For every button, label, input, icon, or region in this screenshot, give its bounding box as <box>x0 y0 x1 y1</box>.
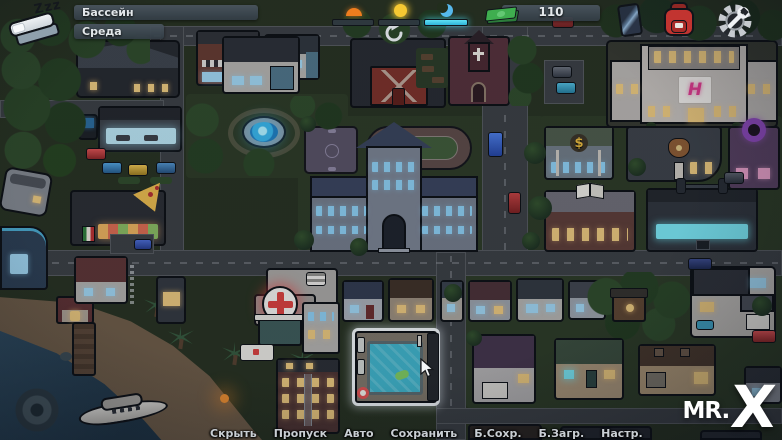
parked-car-red-2 <box>752 330 776 343</box>
cash-icon <box>486 8 520 24</box>
bed-icon <box>6 5 65 52</box>
house-roof <box>470 282 510 300</box>
dumbbell-bar <box>684 184 720 189</box>
watermark-x: X <box>730 384 778 430</box>
hospital-tower <box>302 302 340 354</box>
factory-window <box>148 84 154 92</box>
tree <box>444 284 462 302</box>
house-mid-1[interactable] <box>342 280 384 322</box>
school-entrance-arch <box>382 214 406 252</box>
church-door <box>471 82 486 102</box>
house-window <box>447 304 455 312</box>
tree <box>752 296 772 316</box>
house-window <box>350 305 359 313</box>
garden-bench <box>422 66 434 72</box>
bank-sign-disc: $ <box>570 134 588 152</box>
library-windows <box>552 228 628 241</box>
house-door <box>586 370 597 388</box>
house-window <box>106 288 115 296</box>
bank[interactable]: $ <box>544 126 614 180</box>
watermark: MR. X <box>683 384 776 430</box>
house-tv-glow-window <box>564 370 574 379</box>
settings-button[interactable] <box>712 0 760 42</box>
quick-menu: Скрыть Пропуск Авто Сохранить Б.Сохр. Б.… <box>210 427 643 440</box>
quick-menu-hide[interactable]: Скрыть <box>210 427 257 440</box>
donut-window <box>758 168 770 179</box>
tree <box>466 330 482 346</box>
big-house-garage-door <box>746 314 770 330</box>
hospital-canopy <box>254 314 304 321</box>
school-tower-roof <box>356 122 432 148</box>
hedge <box>150 177 172 184</box>
location-label-text: Бассейн <box>82 6 134 19</box>
dumbbell-plate <box>676 178 686 194</box>
quick-menu-save[interactable]: Сохранить <box>391 427 458 440</box>
cinema-window <box>10 254 28 274</box>
hospital[interactable] <box>254 268 340 354</box>
donut-sign <box>742 118 766 142</box>
sunrise-icon[interactable] <box>346 8 362 16</box>
campfire[interactable] <box>220 394 229 403</box>
moon-icon[interactable] <box>440 4 453 17</box>
big-house-window-2 <box>750 278 766 288</box>
gym-window-band <box>656 224 748 239</box>
treehouse-window <box>626 304 634 312</box>
school-right-roof <box>416 176 478 198</box>
tree <box>522 232 540 250</box>
white-lattice-fence <box>130 262 134 304</box>
parked-car-cyan <box>556 82 576 94</box>
hotel-entrance <box>688 108 704 122</box>
hedge <box>118 177 140 184</box>
garage-door <box>482 382 508 399</box>
driving-car-blue <box>488 132 503 157</box>
tree <box>350 238 368 256</box>
open-book-sign <box>576 183 590 199</box>
sea-rock-small <box>60 352 72 361</box>
money-value: 110 <box>538 5 563 19</box>
tree <box>524 142 546 164</box>
quick-menu-quicksave[interactable]: Б.Сохр. <box>474 427 521 440</box>
house-br-1[interactable] <box>468 280 512 322</box>
school-wing-windows-2 <box>422 206 472 216</box>
smartphone-icon <box>617 3 643 38</box>
lounger <box>357 359 365 375</box>
hotel-lower-windows-right <box>748 84 772 94</box>
house-mid-2[interactable] <box>388 278 434 322</box>
watermark-prefix: MR. <box>683 400 730 423</box>
backyard-pool <box>696 320 714 330</box>
fire-escape <box>304 374 312 426</box>
gym-roof-edge <box>648 190 756 202</box>
showroom-car-silhouette <box>144 135 158 141</box>
bank-sign: $ <box>574 136 583 151</box>
house-balcony-window <box>526 304 538 313</box>
house-roof <box>640 346 714 366</box>
house-window <box>576 304 584 312</box>
shop-window <box>163 292 180 306</box>
house-window <box>476 306 485 314</box>
house-window <box>84 288 93 296</box>
boathouse-door-lit <box>70 311 80 321</box>
dealership-roof <box>100 108 180 120</box>
gear-wrench-icon <box>712 0 758 42</box>
tree <box>628 158 646 176</box>
church-grove <box>506 36 546 106</box>
parked-car-yellow <box>128 164 148 176</box>
house-window <box>250 76 262 85</box>
parked-car-blue-3 <box>134 239 152 250</box>
parked-car-dark <box>552 66 572 78</box>
time-slot-bar-night-active[interactable] <box>424 19 468 26</box>
treehouse[interactable] <box>612 292 646 322</box>
quick-menu-skip[interactable]: Пропуск <box>274 427 327 440</box>
house-door <box>366 305 374 319</box>
driving-car-navy <box>688 258 712 270</box>
house-window <box>416 305 425 313</box>
day-label-text: Среда <box>82 25 122 38</box>
beach-shop[interactable] <box>156 276 186 324</box>
tree <box>528 196 552 220</box>
hotel-mid-windows <box>648 106 676 117</box>
house-window <box>604 370 615 379</box>
library[interactable] <box>544 190 636 252</box>
dormer <box>654 348 664 357</box>
bay-window <box>694 372 708 384</box>
time-slot-bar-morning[interactable] <box>332 19 374 26</box>
dormer <box>680 348 690 357</box>
location-label: Бассейн <box>74 5 258 20</box>
hotel-lower-windows-left <box>616 84 640 94</box>
house-annex <box>270 66 294 90</box>
treehouse-roof <box>610 288 648 298</box>
big-house-window <box>700 302 714 312</box>
house-top-2[interactable] <box>222 36 300 94</box>
apartment-roof-window <box>306 363 313 369</box>
lifebuoy <box>357 387 369 399</box>
sea-rocks <box>14 388 60 432</box>
backpack-icon <box>662 2 696 38</box>
hospital-roof-vents <box>306 272 326 286</box>
badge-star <box>676 145 682 151</box>
pepperoni-dot <box>155 186 159 190</box>
quick-menu-auto[interactable]: Авто <box>344 427 373 440</box>
pool-water <box>367 341 423 395</box>
police-windows <box>690 162 716 174</box>
tree <box>294 230 314 250</box>
factory-window <box>162 84 168 92</box>
tudor-door <box>392 88 405 106</box>
palm-trunk <box>178 339 183 349</box>
phone-button[interactable] <box>612 2 648 40</box>
day-label: Среда <box>74 24 164 39</box>
lounger <box>357 337 365 353</box>
pizzeria-awning <box>82 226 95 242</box>
road-marking <box>450 256 452 406</box>
police-badge-sign <box>668 138 690 158</box>
school-left-roof <box>310 176 372 198</box>
house-roof <box>390 280 432 298</box>
time-of-day-widget[interactable] <box>332 2 470 28</box>
hotel-top-windows <box>654 51 734 63</box>
bank-column <box>598 150 601 176</box>
house-window <box>397 305 406 313</box>
red-cross-horizontal <box>268 301 293 308</box>
sleep-button[interactable]: Zzz <box>6 0 70 48</box>
school-wing-windows-4 <box>422 226 472 234</box>
gym-door <box>696 240 710 250</box>
rv-window <box>32 195 41 203</box>
pepperoni-dot <box>148 192 153 197</box>
arrow-pointer-icon <box>420 358 436 384</box>
house-green[interactable] <box>554 338 624 400</box>
moon-crescent-bite <box>437 2 448 13</box>
open-book-sign-right <box>590 183 604 199</box>
park-trees <box>186 96 348 176</box>
house-roof <box>556 340 622 364</box>
garage-door <box>646 372 666 388</box>
hospital-garage <box>258 318 302 346</box>
palm-trunk <box>232 355 237 365</box>
house-roof <box>76 258 126 282</box>
school-wing-windows-3 <box>316 226 366 234</box>
tree <box>300 116 316 132</box>
house-roof <box>474 336 534 368</box>
time-slot-bar-day[interactable] <box>378 19 420 26</box>
quick-menu-quickload[interactable]: Б.Загр. <box>539 427 585 440</box>
car-dealership[interactable] <box>98 106 182 152</box>
hotel-mid-windows-2 <box>714 106 738 117</box>
house-porch <box>306 52 318 78</box>
school-wing-windows <box>316 206 366 216</box>
house-roof <box>518 280 562 299</box>
parked-car-blue <box>102 162 122 174</box>
house-br-2[interactable] <box>516 278 564 322</box>
game-screen: H $ <box>0 0 782 440</box>
diving-board <box>417 335 422 347</box>
house-window <box>546 304 555 312</box>
house-purple[interactable] <box>472 334 536 404</box>
gym[interactable] <box>646 188 758 252</box>
hospital-tower-windows <box>308 312 334 321</box>
driving-car-red <box>508 192 521 214</box>
hospital-tower-windows-2 <box>308 330 334 339</box>
inventory-button[interactable] <box>656 0 702 40</box>
community-garden[interactable] <box>416 48 448 88</box>
house-window <box>518 374 529 383</box>
house-window <box>232 76 244 85</box>
parked-car-blue-2 <box>156 162 176 174</box>
backpack-tag <box>675 23 683 28</box>
garden-bench <box>421 54 433 60</box>
school-tower-windows-2 <box>372 180 416 190</box>
garden-bench <box>432 77 444 83</box>
house-roof <box>224 38 298 62</box>
house-window <box>494 306 503 314</box>
big-house-roof <box>692 268 750 296</box>
pier-deck[interactable] <box>72 322 96 376</box>
hotel-logo: H <box>688 80 702 100</box>
ambulance-cross <box>253 349 259 355</box>
church-cross-arm <box>473 52 484 55</box>
house-roof <box>344 282 382 299</box>
showroom-car-silhouette <box>116 135 130 141</box>
hotel-logo-panel: H <box>678 76 712 104</box>
bank-column <box>556 150 559 176</box>
cash-bill-stripe <box>496 11 505 18</box>
school-steps <box>378 248 410 253</box>
apartment-roof-window <box>286 363 293 369</box>
ambulance <box>240 344 274 361</box>
sun-icon[interactable] <box>394 4 407 17</box>
apartment-building[interactable] <box>276 358 340 434</box>
factory-window <box>134 84 140 92</box>
cinema[interactable] <box>0 226 48 290</box>
forest-left <box>0 52 96 178</box>
parked-car-dark-2 <box>724 172 744 184</box>
church[interactable] <box>448 36 510 106</box>
quick-menu-prefs[interactable]: Настр. <box>601 427 643 440</box>
house-red-roof[interactable] <box>74 256 128 304</box>
hotel[interactable]: H <box>606 40 778 128</box>
school-tower-windows <box>372 162 416 172</box>
